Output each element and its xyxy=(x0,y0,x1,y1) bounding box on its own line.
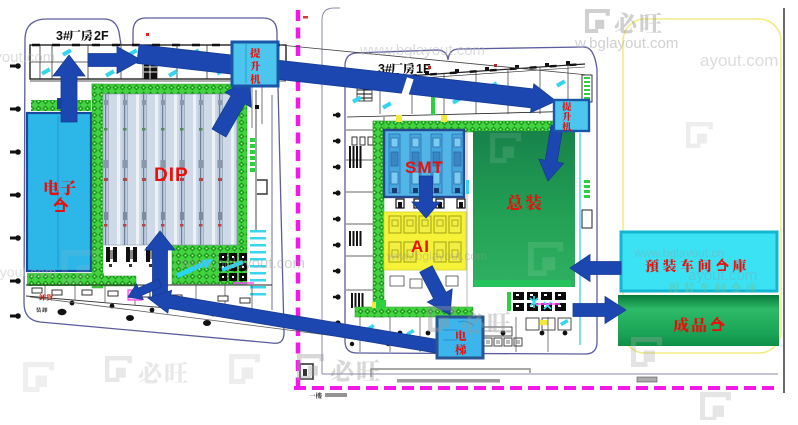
svg-text:www.bglayout.com: www.bglayout.com xyxy=(179,255,305,272)
svg-text:DIP: DIP xyxy=(154,165,189,186)
svg-text:ayout.com: ayout.com xyxy=(0,264,57,280)
svg-text:www.bglayout.com: www.bglayout.com xyxy=(359,42,485,59)
svg-text:ayout.com: ayout.com xyxy=(0,49,55,66)
svg-text:www.bglayout.co: www.bglayout.co xyxy=(633,246,724,260)
svg-text:3#: 3# xyxy=(56,29,70,43)
svg-text:SMT: SMT xyxy=(405,158,444,177)
svg-text:2F: 2F xyxy=(94,29,109,43)
svg-text:ayout.com: ayout.com xyxy=(688,267,757,284)
svg-text:w.bglayout.com: w.bglayout.com xyxy=(574,35,678,52)
svg-text:ayout.com: ayout.com xyxy=(700,51,778,70)
svg-text:www.bglayout.com: www.bglayout.com xyxy=(386,249,487,263)
